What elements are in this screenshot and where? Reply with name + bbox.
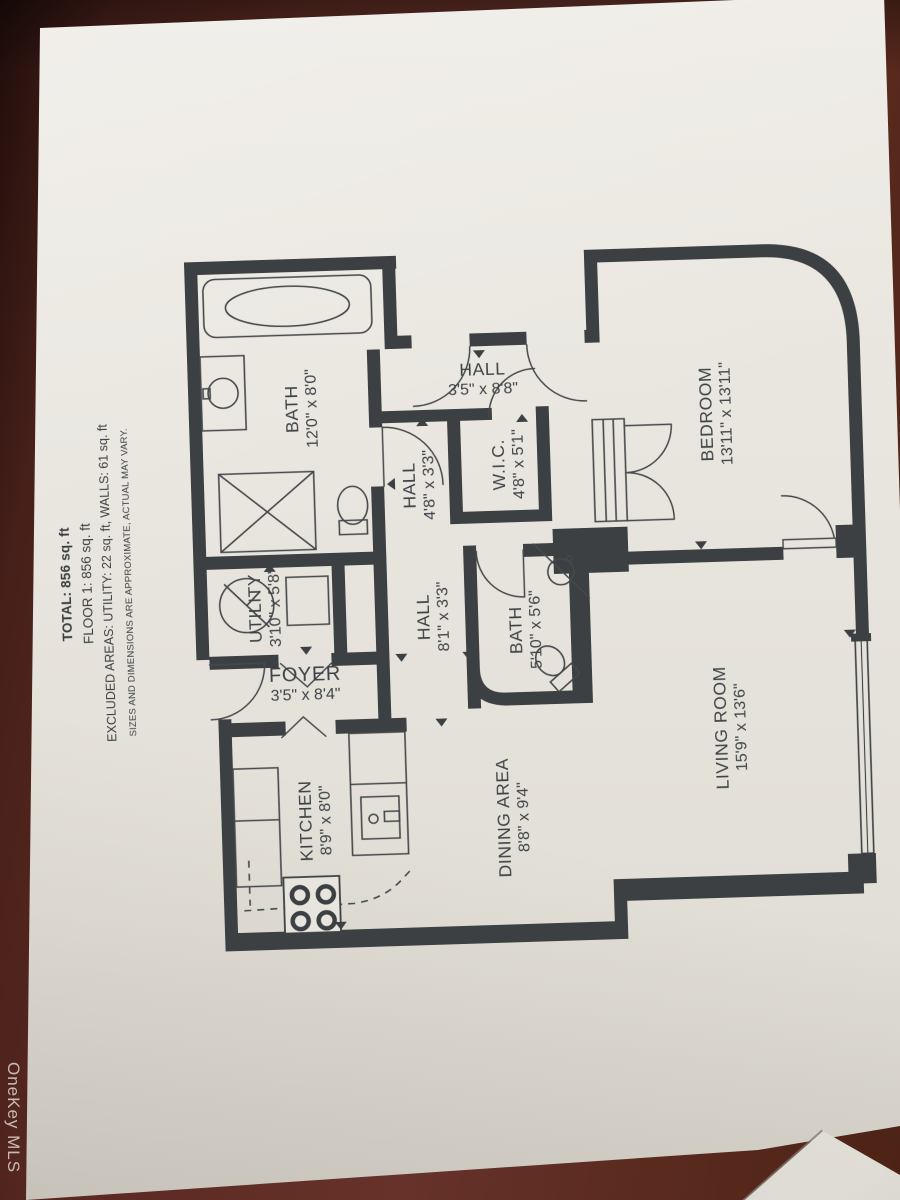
hall-bedroom-door <box>527 343 587 403</box>
room-label-bedroom: BEDROOM 13'11" x 13'11" <box>694 362 737 466</box>
room-label-wic: W.I.C. 4'8" x 5'1" <box>487 429 529 500</box>
window <box>855 639 874 853</box>
entry-door <box>210 663 267 720</box>
photo-scene: TOTAL: 856 sq. ft FLOOR 1: 856 sq. ft EX… <box>0 0 900 1200</box>
room-label-living-room: LIVING ROOM 15'9" x 13'6" <box>709 665 753 789</box>
room-label-hall-mid: HALL 4'8" x 3'3" <box>398 450 440 521</box>
utility-appliance-icon <box>286 576 329 625</box>
room-label-bath-main: BATH 12'0" x 8'0" <box>280 369 322 449</box>
area-summary: TOTAL: 856 sq. ft FLOOR 1: 856 sq. ft EX… <box>49 372 143 794</box>
vanity-sink-icon <box>200 356 246 431</box>
kitchen-counter-left-icon <box>233 768 282 887</box>
floorplan-sheet: TOTAL: 856 sq. ft FLOOR 1: 856 sq. ft EX… <box>0 0 900 1200</box>
shower-icon <box>219 471 316 552</box>
toilet-main-icon <box>337 486 368 535</box>
room-label-hall-top: HALL 3'5" x 8'8" <box>447 358 518 400</box>
foyer-bifold-door <box>281 716 326 737</box>
closet-shelves-icon <box>592 419 627 522</box>
sheet-content: TOTAL: 856 sq. ft FLOOR 1: 856 sq. ft EX… <box>10 0 900 1161</box>
bedroom-living-door-leaf <box>783 538 836 549</box>
room-label-utility: UTILITY 3'10" x 5'8" <box>244 568 286 648</box>
stove-icon <box>283 876 341 934</box>
room-label-dining-area: DINING AREA 8'8" x 9'4" <box>492 757 536 878</box>
closet-door-arcs <box>624 424 674 520</box>
onekey-mls-watermark: OneKey MLS <box>3 1062 23 1200</box>
kitchen-counter-right-icon <box>349 732 409 856</box>
room-label-kitchen: KITCHEN 8'9" x 8'0" <box>294 779 337 861</box>
bathtub-icon <box>203 275 373 338</box>
room-label-hall-lower: HALL 8'1" x 3'3" <box>412 581 454 652</box>
room-label-bath-small: BATH 5'10" x 5'6" <box>504 590 546 670</box>
floor-plan: BEDROOM 13'11" x 13'11" LIVING ROOM 15'9… <box>184 241 880 957</box>
room-label-foyer: FOYER 3'5" x 8'4" <box>269 664 342 706</box>
dimension-arrows <box>257 339 865 932</box>
